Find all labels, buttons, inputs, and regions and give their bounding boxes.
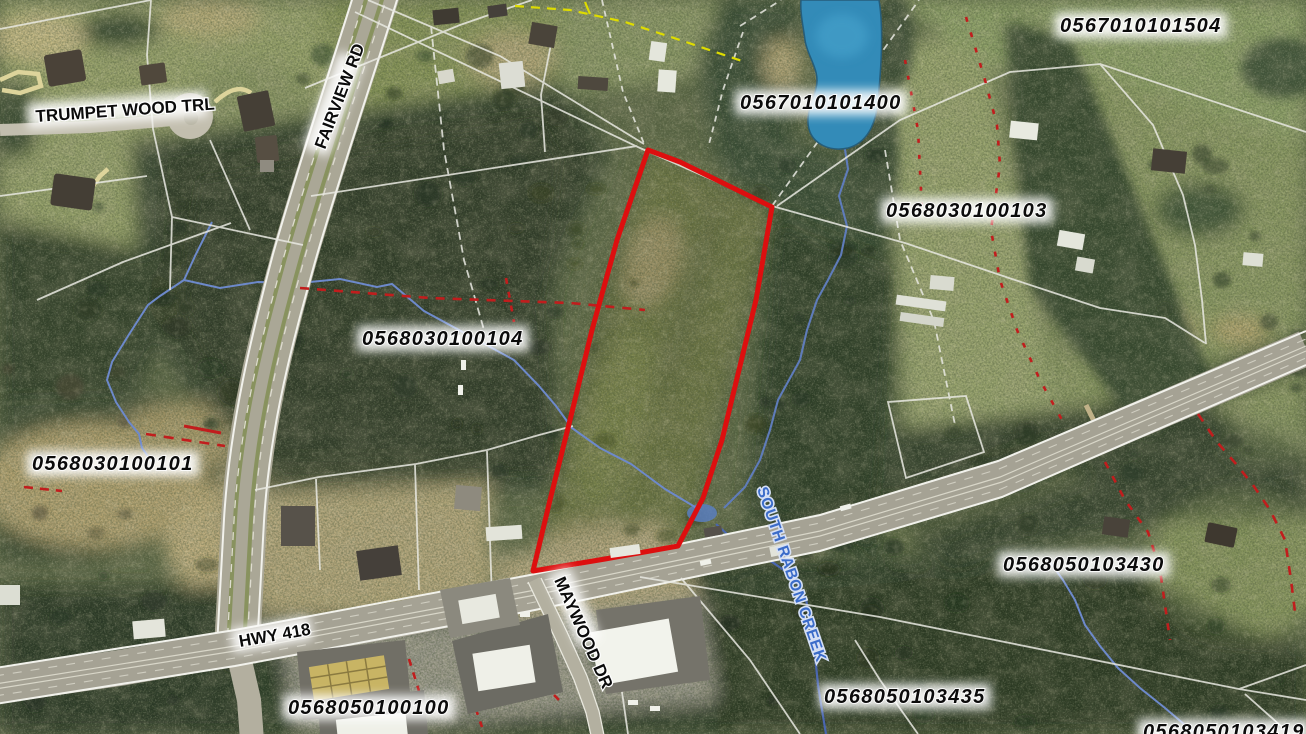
svg-text:0568050103435: 0568050103435 [824, 686, 986, 708]
svg-text:0568030100101: 0568030100101 [32, 453, 194, 475]
svg-text:0568030100103: 0568030100103 [886, 200, 1048, 222]
svg-text:0568050103430: 0568050103430 [1003, 554, 1165, 576]
svg-text:0567010101400: 0567010101400 [740, 92, 902, 114]
svg-text:0568030100104: 0568030100104 [362, 328, 524, 350]
svg-text:0568050100100: 0568050100100 [288, 697, 450, 719]
svg-text:0567010101504: 0567010101504 [1060, 15, 1222, 37]
svg-text:0568050103419: 0568050103419 [1143, 721, 1305, 734]
